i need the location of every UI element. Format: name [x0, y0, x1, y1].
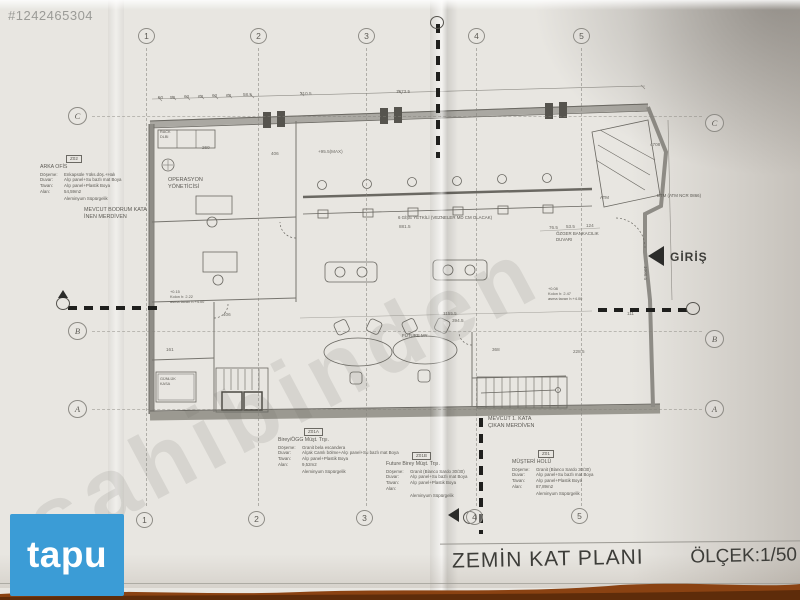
dimension-label: 63: [226, 93, 231, 98]
dimension-label: 58.5: [243, 92, 252, 97]
section-line-right: [598, 308, 688, 312]
dimension-label: 1673.5: [396, 89, 410, 94]
section-marker-right: [686, 302, 700, 315]
plan-label-giris: GİRİŞ: [670, 250, 708, 265]
spec-key: Alan:: [512, 484, 536, 490]
grid-bubble-bottom-3: 3: [356, 510, 373, 526]
section-arrow-bottom: [448, 508, 459, 522]
spec-tag: Z01: [538, 450, 554, 458]
stairs-up: [477, 377, 567, 408]
listing-photo-floorplan: #1242465304 sahibinden tapu ZEMİN KAT PL…: [0, 0, 800, 600]
grid-bubble-top-3: 3: [358, 28, 375, 44]
dimension-label: 50: [158, 95, 163, 100]
grid-bubble-bottom-5: 5: [571, 508, 588, 524]
grid-bubble-top-5: 5: [573, 28, 590, 44]
tapu-logo: tapu: [10, 514, 124, 596]
spec-row: Alan:87,89m2: [512, 484, 652, 490]
spec-block-z01: Z01MÜŞTERİ HOLÜDöşeme:Granit (Blanco Sar…: [512, 450, 652, 496]
spec-footer: Aleminyum Süpürgelik: [64, 196, 158, 202]
plan-label-atm: ATM: [600, 195, 609, 201]
plan-label-gunluk-kasa: GÜNLÜK KASA: [160, 377, 176, 386]
dimension-label: 63: [198, 94, 203, 99]
plan-label-operasyon-yoneticisi: OPERASYON YÖNETİCİSİ: [168, 177, 203, 191]
dimension-label: +95.5(MAX): [318, 149, 343, 154]
spec-room-title: Birey/ÖGG Müşt. Trşı.: [278, 437, 438, 444]
dimension-label: 50: [170, 95, 175, 100]
dimension-label: 310.5: [300, 91, 312, 96]
spec-tag: Z01B: [412, 452, 431, 460]
grid-bubble-top-1: 1: [138, 28, 155, 44]
plan-label-gise-yetkili: 6 GİŞE YETKİLİ (VEZNELER MD CM OLACAK): [398, 215, 492, 221]
spec-room-title: ARKA OFİS: [40, 164, 158, 171]
spec-value: 87,89m2: [536, 484, 652, 490]
grid-bubble-top-4: 4: [468, 28, 485, 44]
dimension-label: 4708: [650, 142, 660, 147]
plan-label-bankacilik-duvari: ÖZGER BANKACILIK DUVARI: [556, 231, 599, 242]
plan-label-future-my: FUTURE MY: [402, 333, 428, 339]
grid-bubble-right-C: C: [705, 114, 724, 132]
dimension-label: 111: [627, 311, 634, 316]
grid-bubble-left-A: A: [68, 400, 87, 418]
grid-bubble-left-B: B: [68, 322, 87, 340]
dimension-label: 406: [223, 312, 231, 317]
teller-counter: [303, 174, 592, 219]
dimension-label: 53.5: [566, 224, 575, 229]
spec-key: Alan:: [386, 486, 410, 492]
section-arrow-left: [58, 290, 68, 298]
grid-bubble-top-2: 2: [250, 28, 267, 44]
grid-bubble-bottom-2: 2: [248, 511, 265, 527]
listing-id-watermark: #1242465304: [8, 8, 93, 23]
spec-tag: Z02: [66, 155, 82, 163]
dimension-label: 368: [492, 347, 500, 352]
spec-block-z02: Z02ARKA OFİSDöşeme:Enkapsüle Yüks.döş.+H…: [40, 155, 158, 201]
section-marker-top: [430, 16, 444, 29]
dimension-label: 1008.5: [643, 266, 648, 280]
grid-bubble-bottom-4: 4: [466, 509, 483, 525]
grid-bubble-right-A: A: [705, 400, 724, 418]
dimension-label: 260: [202, 145, 210, 150]
dimension-label: 228.5: [573, 349, 585, 354]
plan-label-kata-cikan-merdiven: MEVCUT 1. KATA ÇIKAN MERDİVEN: [488, 416, 534, 430]
dimension-label: 63: [212, 93, 217, 98]
dimension-label: 881.5: [399, 224, 411, 229]
office-furniture: [158, 130, 237, 285]
entrance-arrow-icon: [648, 246, 664, 266]
grid-bubble-bottom-1: 1: [136, 512, 153, 528]
dimension-label: 76.5: [549, 225, 558, 230]
dimension-label: 394.5: [452, 318, 464, 323]
grid-line-row-B: [92, 331, 702, 332]
spec-tag: Z01A: [304, 428, 323, 436]
dimension-label: 63: [184, 94, 189, 99]
grid-line-row-A: [92, 409, 702, 410]
spec-key: Alan:: [278, 462, 302, 468]
plan-label-btm-atm: BTM (ATM NCR 0866): [657, 193, 701, 199]
plan-label-rack-dlbi: RACK DLBI: [160, 130, 171, 139]
section-marker-left: [56, 297, 70, 310]
plan-scale: ÖLÇEK:1/50: [690, 544, 797, 568]
plan-label-kolon-note-left: +0.15 Kolon h: 2.22 asma tavan h:+4.00: [170, 290, 204, 305]
spec-footer: Aleminyum Süpürgelik: [536, 491, 652, 497]
dimension-label: 1155.5: [443, 311, 457, 316]
grid-bubble-left-C: C: [68, 107, 87, 125]
dimension-label: 406: [271, 151, 279, 156]
plan-label-kolon-note-right: +0.08 Kolon h: 2.47 asma tavan h:+4.00: [548, 287, 582, 302]
tapu-logo-text: tapu: [27, 534, 107, 576]
spec-room-title: MÜŞTERİ HOLÜ: [512, 459, 652, 466]
spec-value: 54,59m2: [64, 189, 158, 195]
grid-bubble-right-B: B: [705, 330, 724, 348]
section-line-top: [436, 24, 440, 158]
atm-vestibule: [592, 120, 660, 207]
spec-key: Alan:: [40, 189, 64, 195]
grid-line-row-C: [92, 116, 702, 117]
spec-row: Alan:54,59m2: [40, 189, 158, 195]
plan-label-bodrum-merdiven: MEVCUT BODRUM KATA İNEN MERDİVEN: [84, 207, 147, 221]
dimension-label: 124: [586, 223, 594, 228]
dimension-label: 161: [166, 347, 174, 352]
plan-title: ZEMİN KAT PLANI: [452, 546, 644, 574]
